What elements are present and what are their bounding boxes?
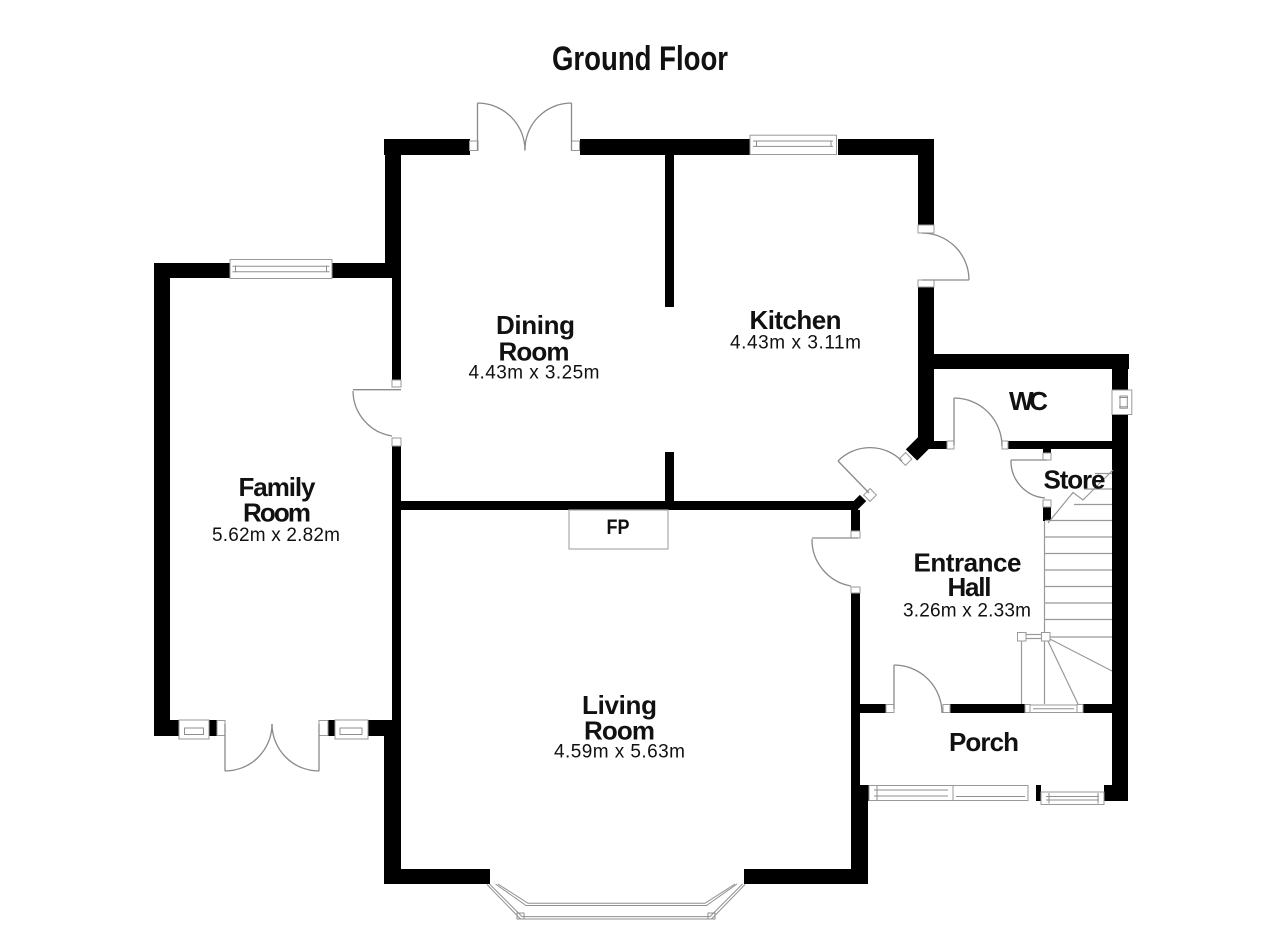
svg-text:WC: WC: [1009, 386, 1048, 416]
svg-text:Store: Store: [1044, 465, 1106, 495]
svg-text:FP: FP: [607, 516, 630, 539]
svg-text:Hall: Hall: [948, 572, 992, 602]
svg-text:Ground Floor: Ground Floor: [552, 40, 728, 78]
svg-text:4.43m x 3.25m: 4.43m x 3.25m: [469, 363, 600, 384]
svg-text:Dining: Dining: [496, 310, 575, 340]
svg-text:Room: Room: [243, 498, 311, 528]
svg-text:5.62m x 2.82m: 5.62m x 2.82m: [212, 525, 340, 546]
svg-text:Porch: Porch: [949, 727, 1019, 757]
svg-text:Kitchen: Kitchen: [750, 305, 842, 335]
svg-text:3.26m x 2.33m: 3.26m x 2.33m: [903, 601, 1031, 622]
svg-text:4.43m x 3.11m: 4.43m x 3.11m: [730, 333, 861, 354]
svg-text:4.59m x 5.63m: 4.59m x 5.63m: [554, 742, 685, 763]
